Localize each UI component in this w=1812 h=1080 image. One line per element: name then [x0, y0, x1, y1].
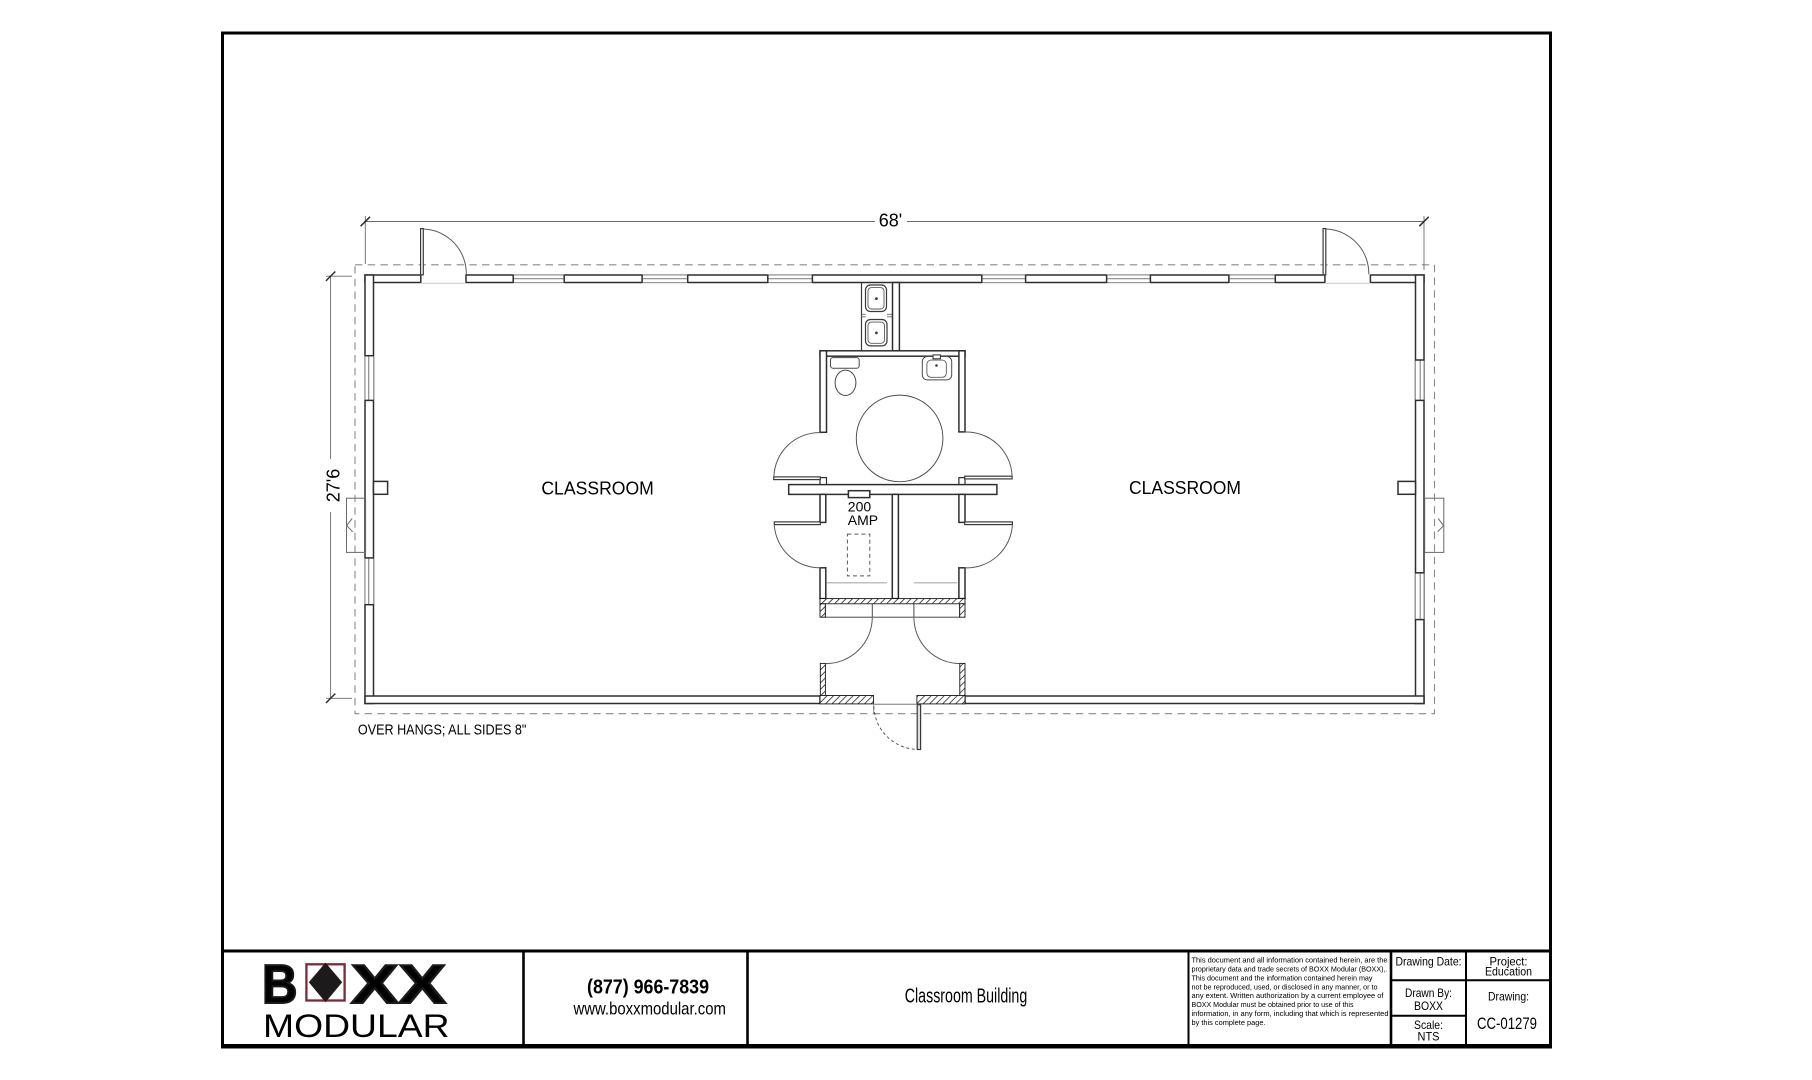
svg-text:27'6: 27'6	[324, 469, 344, 502]
svg-text:Education: Education	[1485, 965, 1532, 979]
svg-text:Drawn By:: Drawn By:	[1405, 986, 1452, 1000]
svg-text:CLASSROOM: CLASSROOM	[1129, 477, 1241, 498]
svg-text:Drawing:: Drawing:	[1488, 990, 1529, 1004]
svg-text:any extent. Written authoriza: any extent. Written authorization by a c…	[1192, 991, 1385, 1000]
svg-text:CLASSROOM: CLASSROOM	[541, 478, 654, 499]
svg-text:NTS: NTS	[1418, 1029, 1440, 1043]
svg-text:proprietary data and trade sec: proprietary data and trade secrets of BO…	[1192, 965, 1388, 974]
svg-text:68': 68'	[879, 211, 902, 231]
svg-text:AMP: AMP	[848, 512, 878, 528]
svg-text:BOXX Modular must be obtained: BOXX Modular must be obtained prior to u…	[1192, 1000, 1354, 1009]
svg-text:(877) 966-7839: (877) 966-7839	[587, 977, 709, 999]
svg-text:Drawing Date:: Drawing Date:	[1396, 954, 1462, 968]
svg-text:by this complete page.: by this complete page.	[1192, 1018, 1266, 1027]
svg-text:www.boxxmodular.com: www.boxxmodular.com	[573, 999, 726, 1019]
svg-text:MODULAR: MODULAR	[263, 1008, 450, 1044]
svg-text:This document and all informat: This document and all information contai…	[1192, 956, 1388, 965]
svg-text:BOXX: BOXX	[1414, 999, 1443, 1013]
svg-text:This document and the informat: This document and the information contai…	[1192, 973, 1373, 982]
svg-text:B: B	[262, 953, 298, 1015]
svg-text:OVER HANGS; ALL SIDES 8": OVER HANGS; ALL SIDES 8"	[358, 722, 527, 739]
svg-text:information, in any form, incl: information, in any form, including that…	[1192, 1009, 1389, 1018]
svg-text:CC-01279: CC-01279	[1477, 1014, 1537, 1033]
svg-text:not be reproduced, used, or di: not be reproduced, used, or disclosed in…	[1192, 982, 1378, 991]
svg-text:Classroom Building: Classroom Building	[905, 985, 1028, 1007]
svg-text:XX: XX	[351, 953, 446, 1015]
